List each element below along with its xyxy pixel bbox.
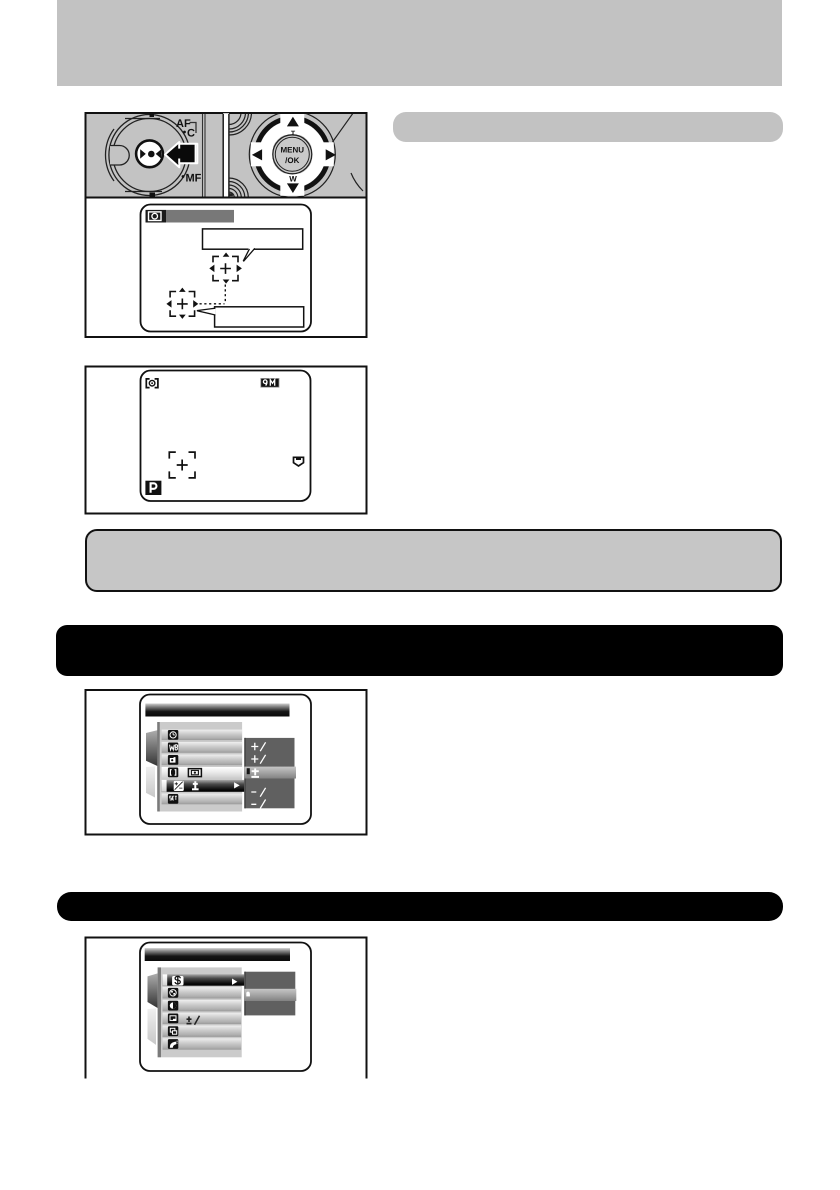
- svg-text:/OK: /OK: [285, 156, 299, 165]
- svg-text:T: T: [291, 131, 296, 138]
- svg-text:C: C: [187, 128, 195, 140]
- svg-text:MF: MF: [186, 173, 202, 185]
- svg-text:MENU: MENU: [281, 146, 305, 155]
- svg-text:W: W: [289, 175, 297, 184]
